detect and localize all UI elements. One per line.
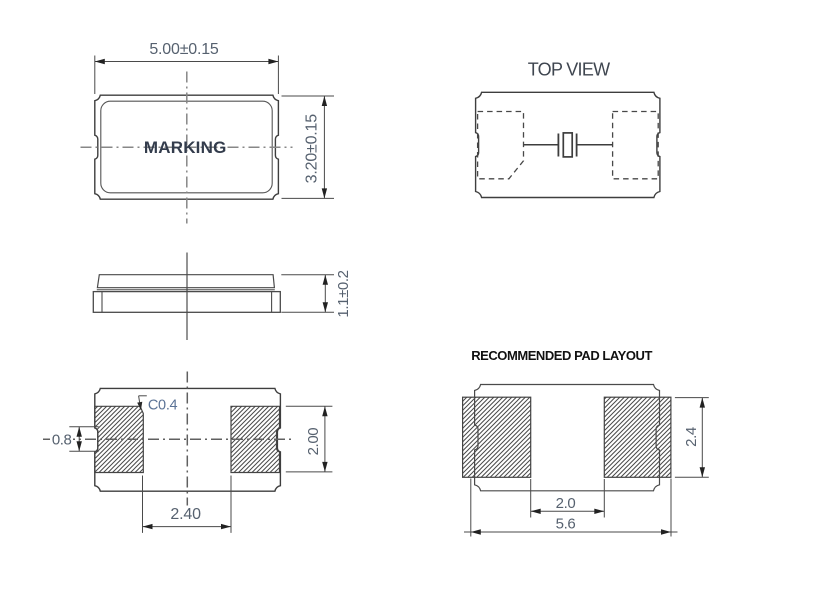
svg-text:5.00±0.15: 5.00±0.15	[149, 41, 219, 58]
svg-text:2.40: 2.40	[170, 506, 201, 523]
svg-text:TOP VIEW: TOP VIEW	[528, 60, 610, 80]
svg-text:RECOMMENDED PAD LAYOUT: RECOMMENDED PAD LAYOUT	[471, 348, 652, 363]
svg-text:3.20±0.15: 3.20±0.15	[304, 114, 321, 184]
svg-text:5.6: 5.6	[556, 516, 576, 533]
svg-text:2.00: 2.00	[305, 428, 322, 456]
svg-text:MARKING: MARKING	[144, 138, 227, 157]
svg-text:2.0: 2.0	[556, 495, 576, 512]
svg-text:2.4: 2.4	[683, 427, 700, 447]
svg-text:0.8: 0.8	[52, 431, 72, 448]
svg-text:1.1±0.2: 1.1±0.2	[335, 270, 352, 317]
svg-text:C0.4: C0.4	[148, 398, 178, 414]
